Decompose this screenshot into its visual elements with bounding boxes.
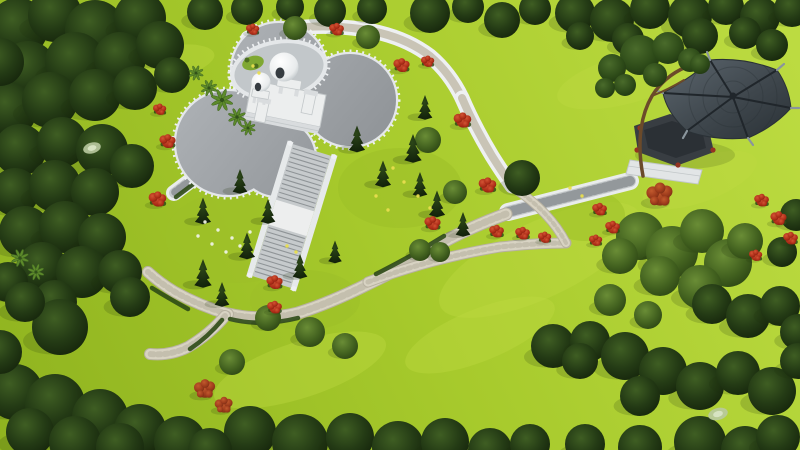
yellow-flower (391, 166, 394, 169)
yellow-flower (251, 64, 254, 67)
white-flower (216, 228, 219, 231)
yellow-flower (416, 194, 419, 197)
white-flower (196, 234, 199, 237)
yellow-flower (374, 194, 377, 197)
tomb-dome-small (252, 73, 271, 92)
yellow-flower (386, 208, 389, 211)
tomb-dome-large (270, 53, 299, 82)
yellow-flower (402, 180, 405, 183)
monument-bed-shrub (245, 58, 250, 63)
yellow-flower (428, 206, 431, 209)
yellow-flower (294, 250, 297, 253)
white-flower (248, 230, 251, 233)
white-flower (203, 220, 206, 223)
landscape-svg (0, 0, 800, 450)
white-flower (238, 244, 241, 247)
yellow-flower (568, 186, 571, 189)
dome-arch (276, 68, 285, 79)
yellow-flower (257, 71, 260, 74)
yellow-flower (580, 194, 583, 197)
dome-arch (255, 83, 261, 91)
white-flower (210, 242, 213, 245)
white-flower (224, 250, 227, 253)
roof-finial (730, 93, 737, 100)
yellow-flower (285, 244, 288, 247)
white-flower (230, 236, 233, 239)
landscape-render (0, 0, 800, 450)
